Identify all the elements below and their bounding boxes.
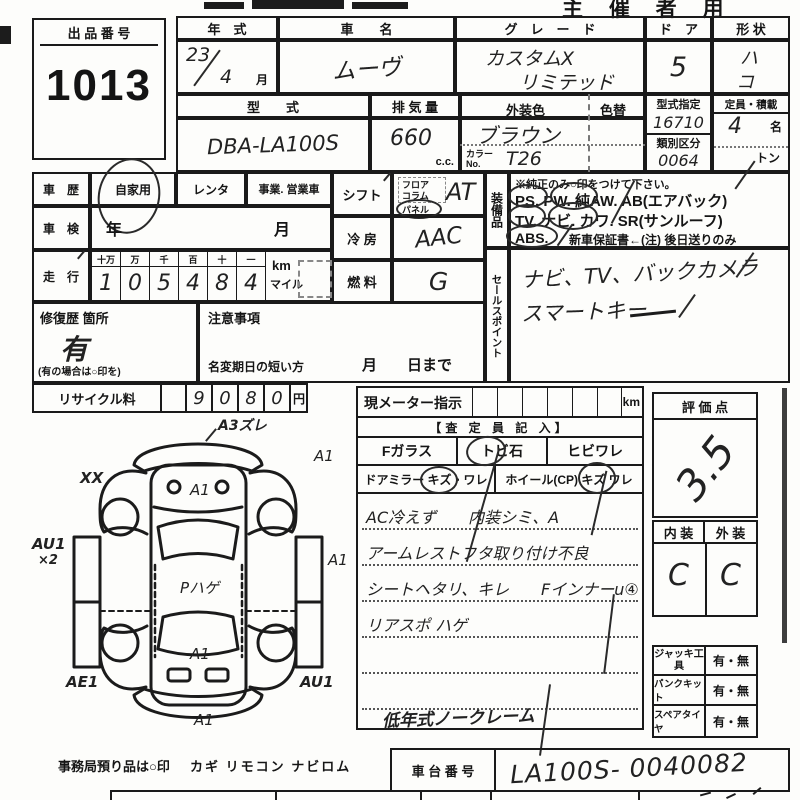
assessor-note-1: AC冷えず 内装シミ、A (366, 504, 559, 528)
divider (588, 94, 590, 172)
model-header: 型 式 (176, 94, 370, 118)
partial-table-edge (110, 790, 640, 792)
grade-value-1: カスタムX (485, 44, 574, 71)
assessor-note-4: リアスポ ハゲ (366, 612, 467, 636)
interior-label: 内 装 (654, 522, 705, 544)
assessor-note-2: アームレストフタ取り付け不良 (366, 540, 589, 564)
tools-box: ジャッキ工具 有・無 パンクキット 有・無 スペアタイヤ 有・無 (652, 645, 758, 738)
fuel-label: 燃 料 (332, 260, 392, 303)
history-rental: レンタ (176, 172, 246, 206)
displacement-header: 排 気 量 (370, 94, 460, 118)
history-label: 車 歴 (32, 172, 90, 206)
sales-point-label: セールスポイント (490, 274, 505, 358)
assessor-bottom-note: 低年式ノークレーム (382, 701, 535, 731)
cooling-value: AAC (414, 223, 464, 254)
repair-box: 修復歴 箇所 有 (有の場合は○印を) (32, 302, 198, 383)
model-cell: DBA-LA100S (176, 118, 370, 172)
damage-left-front-fender: XX (80, 469, 103, 487)
shape-value-2: コ (736, 68, 754, 94)
damage-right-side: A1 (328, 551, 348, 569)
sales-point-label-cell: セールスポイント (485, 248, 509, 383)
assessor-header: 【査 定 員 記 入】 (358, 418, 642, 438)
car-name-header: 車 名 (278, 16, 455, 40)
pen-mark (700, 792, 711, 797)
spare-tire-value: 有・無 (706, 706, 756, 736)
recycle-digit: 8 (239, 385, 265, 411)
fuel-value: G (429, 267, 448, 296)
shape-cell: ハ コ (712, 40, 790, 94)
grade-inout-box: 内 装 外 装 C C (652, 520, 758, 617)
wheel-label: ホイール(CP) キズ ワレ (496, 466, 642, 494)
shift-value: AT (446, 178, 475, 206)
capacity-unit: 名 (770, 118, 782, 135)
assessor-note-3: シートヘタリ、キレ Fインナーu④ (366, 576, 639, 600)
type-designation-value: 16710 (647, 111, 710, 133)
score-box: 評 価 点 3.5 (652, 392, 758, 518)
equipment-line3-warranty: 新車保証書←(注) 後日送りのみ (569, 231, 736, 248)
mileage-digit: 4 (237, 267, 265, 299)
damage-diagram: A3ズレ XX A1 A1 AU1 ×2 A1 Pハゲ A1 AE1 AU1 A… (32, 415, 356, 745)
inspection-value: 年 月 (90, 206, 332, 250)
exterior-grade: C (720, 558, 741, 593)
office-note-label: 事務局預り品は○印 (58, 756, 170, 775)
damage-left-side-count: ×2 (38, 553, 58, 568)
exterior-label: 外 装 (705, 522, 756, 544)
front-glass-label: Fガラス (358, 438, 458, 466)
repair-label: 修復歴 箇所 (40, 308, 109, 327)
class-label: 類別区分 (647, 133, 710, 150)
displacement-unit: c.c. (436, 156, 454, 168)
sales-point-box: ナビ、TV、バックカメラ スマートキー (509, 248, 790, 383)
damage-front-bumper: A3ズレ (218, 415, 267, 435)
chassis-value: LA100S- 0040082 (509, 748, 748, 789)
lot-number-box: 出 品 番 号 1013 (32, 18, 166, 160)
digit-header: 千 (150, 252, 178, 267)
fuel-cell: G (392, 260, 485, 303)
meter-label: 現メーター指示 (364, 393, 462, 413)
color-no-label: カラーNo. (466, 150, 496, 170)
recycle-digit: 0 (265, 385, 291, 411)
digit-header: 十万 (92, 252, 120, 267)
door-cell: 5 (645, 40, 712, 94)
mileage-cell: 十万 1 万 0 千 5 百 4 十 8 一 4 km マイル (90, 250, 332, 302)
month-value: 4 (220, 66, 232, 88)
year-cell: 23 4 月 (176, 40, 278, 94)
caution-box: 注意事項 名変期日の短い方 月 日まで (198, 302, 485, 383)
mileage-digit: 1 (92, 267, 120, 299)
damage-left-side: AU1 (32, 535, 66, 553)
chassis-box: 車 台 番 号 LA100S- 0040082 (390, 748, 790, 792)
recycle-label: リサイクル料 (34, 385, 162, 411)
digit-header: 一 (237, 252, 265, 267)
scan-mark (0, 26, 11, 44)
color-header-cell: 外装色 色替 (460, 94, 645, 118)
door-value: 5 (670, 52, 687, 83)
class-value: 0064 (647, 150, 710, 170)
recycle-row: リサイクル料 9 0 8 0 円 (32, 383, 308, 413)
sales-line2: スマートキー (521, 294, 647, 328)
km-label: km (272, 258, 291, 273)
sales-line1: ナビ、TV、バックカメラ (520, 252, 758, 294)
car-name-value: ムーヴ (331, 48, 402, 87)
lot-number-label: 出 品 番 号 (40, 20, 158, 46)
damage-left-rear: AE1 (66, 673, 98, 691)
model-value: DBA-LA100S (207, 131, 340, 160)
load-unit: トン (756, 149, 780, 166)
mileage-label: 走 行 (32, 250, 90, 302)
cooling-label: 冷 房 (332, 216, 392, 260)
color-header: 外装色 (506, 100, 545, 119)
digit-header: 十 (208, 252, 236, 267)
type-designation-cell: 型式指定 16710 類別区分 0064 (645, 94, 712, 172)
damage-rear-deck: A1 (190, 645, 210, 663)
equipment-label: 装備品 (489, 192, 506, 228)
door-header: ド ア (645, 16, 712, 40)
assessor-box: 現メーター指示 km 【査 定 員 記 入】 Fガラス トビ石 ヒビワレ ドアミ… (356, 386, 644, 730)
car-name-cell: ムーヴ (278, 40, 455, 94)
recycle-unit: 円 (291, 385, 307, 411)
capacity-value: 4 (728, 114, 742, 139)
puncture-kit-label: パンクキット (654, 676, 706, 704)
damage-rear-bumper: A1 (194, 711, 214, 729)
grade-value-2: リミテッド (519, 68, 614, 95)
pen-circle (420, 466, 458, 494)
capacity-cell: 定員・積載 4 名 トン (712, 94, 790, 172)
office-note-items: カギ リモコン ナビロム (190, 756, 351, 775)
damage-hood: A1 (190, 481, 210, 499)
year-header: 年 式 (176, 16, 278, 40)
cut-off-title (252, 0, 344, 9)
pen-circle (506, 224, 558, 248)
pen-circle (548, 202, 598, 230)
rename-label: 名変期日の短い方 (208, 358, 304, 375)
digit-header: 万 (121, 252, 149, 267)
displacement-value: 660 (390, 126, 432, 151)
meter-unit: km (623, 395, 640, 409)
caution-label: 注意事項 (208, 308, 260, 327)
divider (714, 146, 788, 148)
year-value: 23 (186, 44, 210, 66)
type-designation-label: 型式指定 (647, 96, 710, 111)
mileage-digit: 0 (121, 267, 149, 299)
damage-roof: Pハゲ (180, 577, 219, 598)
mileage-digit: 5 (150, 267, 178, 299)
inspection-label: 車 検 (32, 206, 90, 250)
damage-right-front-fender: A1 (314, 447, 334, 465)
month-unit: 月 (256, 71, 268, 88)
digit-header: 百 (179, 252, 207, 267)
capacity-label: 定員・積載 (714, 96, 788, 114)
shape-value-1: ハ (740, 44, 758, 70)
spare-tire-label: スペアタイヤ (654, 706, 706, 736)
jack-tools-value: 有・無 (706, 647, 756, 674)
grade-header: グ レ ー ド (455, 16, 645, 40)
chassis-label: 車 台 番 号 (392, 750, 496, 790)
pen-circle (578, 462, 616, 494)
divider (460, 144, 645, 146)
cut-off-title (352, 2, 408, 9)
repair-value: 有 (60, 328, 88, 368)
mileage-digit: 4 (179, 267, 207, 299)
shape-header: 形 状 (712, 16, 790, 40)
recycle-digit: 9 (187, 385, 213, 411)
lot-number: 1013 (34, 46, 164, 126)
puncture-kit-value: 有・無 (706, 676, 756, 704)
mile-box (298, 260, 332, 298)
grade-cell: カスタムX リミテッド (455, 40, 645, 94)
scan-streak (782, 388, 787, 643)
history-business: 事業. 営業車 (246, 172, 332, 206)
color-no-value: T26 (506, 148, 542, 170)
cooling-cell: AAC (392, 216, 485, 260)
pen-mark (726, 793, 736, 799)
cut-off-title (204, 2, 244, 9)
mileage-digit: 8 (208, 267, 236, 299)
damage-right-rear: AU1 (300, 673, 334, 691)
interior-grade: C (668, 558, 689, 593)
auction-sheet: 主 催 者 用 出 品 番 号 1013 年 式 車 名 グ レ ー ド ド ア… (0, 0, 800, 800)
displacement-cell: 660 c.c. (370, 118, 460, 172)
rename-until: 月 日まで (362, 354, 452, 375)
repair-note: (有の場合は○印を) (38, 363, 121, 378)
recycle-digit: 0 (213, 385, 239, 411)
color-change-header: 色替 (600, 100, 626, 119)
jack-tools-label: ジャッキ工具 (654, 647, 706, 674)
